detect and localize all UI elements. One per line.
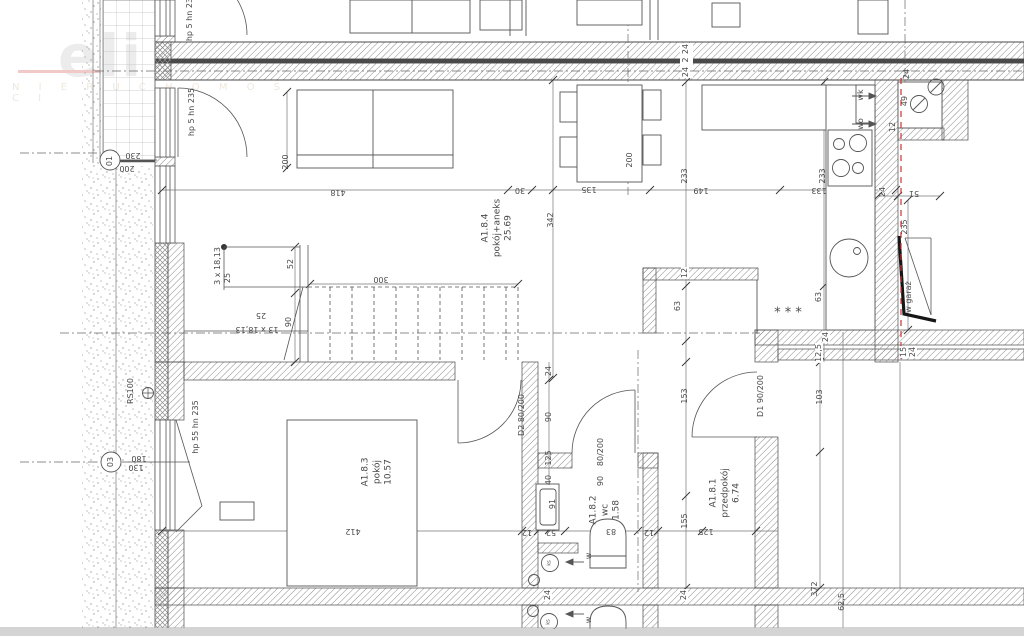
terrace-grid	[103, 0, 155, 161]
stair-treads	[308, 287, 518, 360]
furniture-dining-set	[560, 85, 661, 182]
door-bedroom-d2	[458, 380, 521, 443]
marker-03	[101, 452, 121, 472]
balcony-door-glazing	[155, 88, 175, 157]
floor-plan: eli N I E R U C H O M O Ś C I	[0, 0, 1024, 636]
chair	[643, 90, 661, 120]
door-wc	[572, 390, 635, 453]
window-living	[155, 166, 175, 243]
downpipe-rs100	[142, 387, 154, 399]
door-entrance-d1	[692, 372, 757, 437]
furniture-bed	[220, 420, 417, 586]
door-balcony	[178, 88, 247, 157]
toilet	[590, 519, 626, 568]
bottom-window-edge	[0, 628, 1024, 636]
window-upper-mirror	[155, 0, 175, 36]
door-balcony-mirror	[212, 0, 247, 35]
dining-table	[577, 85, 642, 182]
kitchen-counter	[702, 85, 875, 330]
washbasin	[536, 484, 559, 530]
furniture-sofa	[297, 90, 453, 168]
chair	[560, 137, 578, 167]
stairs	[184, 244, 518, 362]
marker-01	[100, 150, 120, 170]
kitchen-hob	[828, 130, 872, 186]
chair	[643, 135, 661, 165]
nightstand	[220, 502, 254, 520]
garage-door	[899, 236, 936, 321]
vent-shaft	[898, 79, 944, 128]
plan-drawing	[0, 0, 1024, 636]
window-bedroom	[155, 420, 202, 532]
chair	[560, 92, 578, 122]
